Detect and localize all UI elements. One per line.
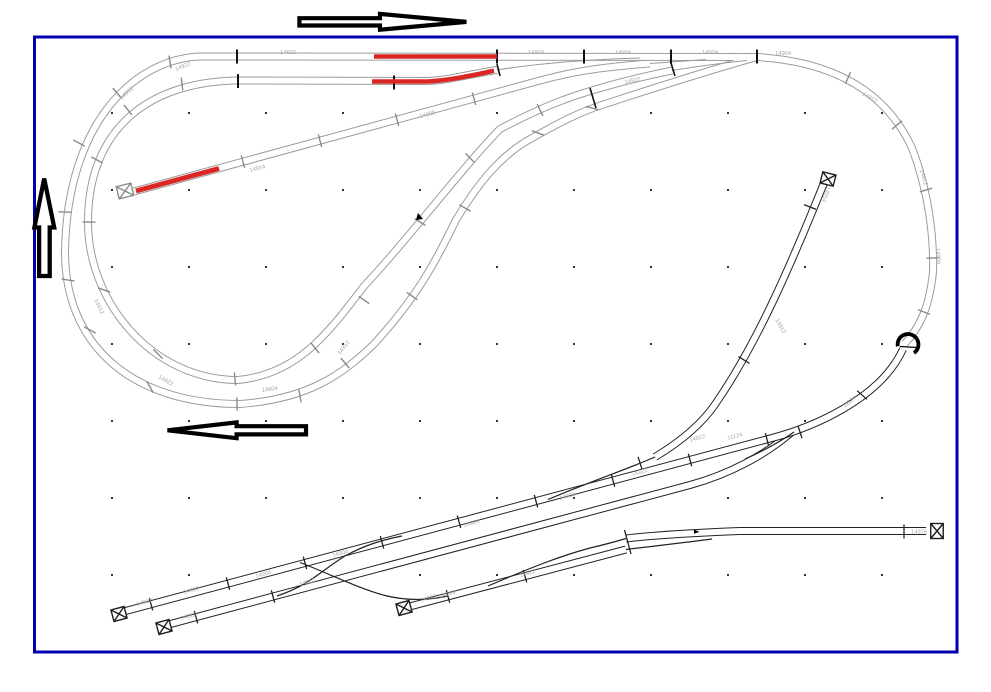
svg-text:14904: 14904 bbox=[702, 50, 719, 56]
svg-text:14904: 14904 bbox=[615, 50, 632, 56]
svg-text:14904: 14904 bbox=[528, 50, 545, 56]
svg-text:14904: 14904 bbox=[775, 51, 792, 57]
svg-text:14976: 14976 bbox=[911, 530, 927, 536]
svg-text:14922: 14922 bbox=[280, 50, 296, 56]
svg-text:14909: 14909 bbox=[934, 248, 941, 264]
